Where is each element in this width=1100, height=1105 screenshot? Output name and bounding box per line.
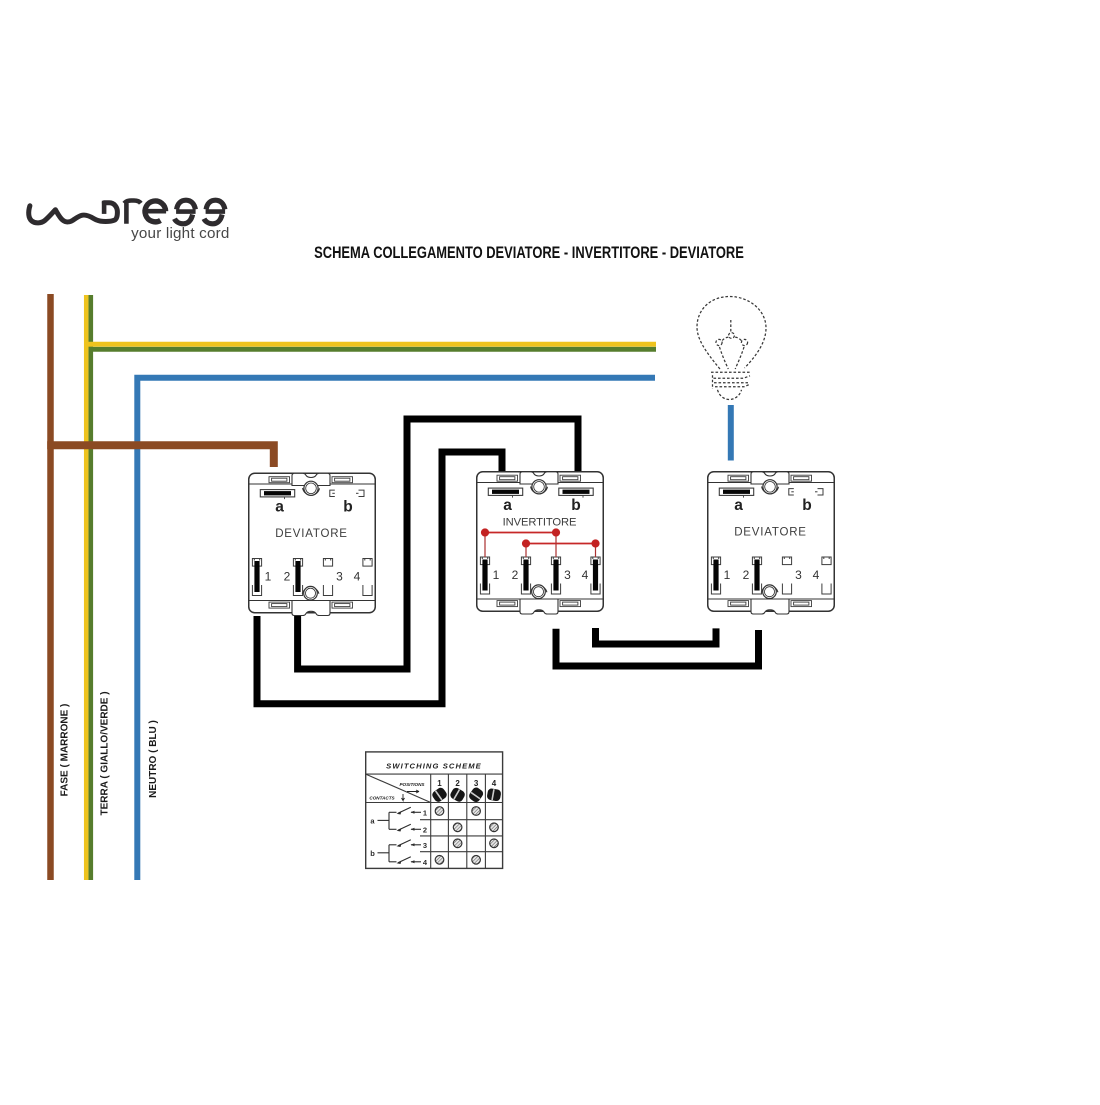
svg-text:2: 2 <box>455 779 460 788</box>
svg-text:2: 2 <box>423 826 427 835</box>
svg-text:your light cord: your light cord <box>131 225 229 242</box>
svg-text:FASE ( MARRONE ): FASE ( MARRONE ) <box>60 704 71 797</box>
svg-text:3: 3 <box>423 841 427 850</box>
svg-text:POSITIONS: POSITIONS <box>399 782 425 787</box>
svg-text:NEUTRO ( BLU ): NEUTRO ( BLU ) <box>148 720 159 798</box>
svg-text:DEVIATORE: DEVIATORE <box>734 527 807 539</box>
svg-text:SWITCHING SCHEME: SWITCHING SCHEME <box>386 762 482 771</box>
svg-text:b: b <box>370 849 375 858</box>
svg-text:1: 1 <box>423 809 427 818</box>
svg-text:SCHEMA COLLEGAMENTO DEVIATORE: SCHEMA COLLEGAMENTO DEVIATORE - INVERTIT… <box>314 243 744 262</box>
svg-text:DEVIATORE: DEVIATORE <box>275 528 348 540</box>
svg-text:3: 3 <box>474 779 479 788</box>
svg-text:CONTACTS: CONTACTS <box>369 796 395 801</box>
svg-text:4: 4 <box>492 779 497 788</box>
svg-text:TERRA ( GIALLO/VERDE ): TERRA ( GIALLO/VERDE ) <box>100 691 111 815</box>
svg-text:INVERTITORE: INVERTITORE <box>503 517 577 529</box>
svg-text:1: 1 <box>437 779 442 788</box>
